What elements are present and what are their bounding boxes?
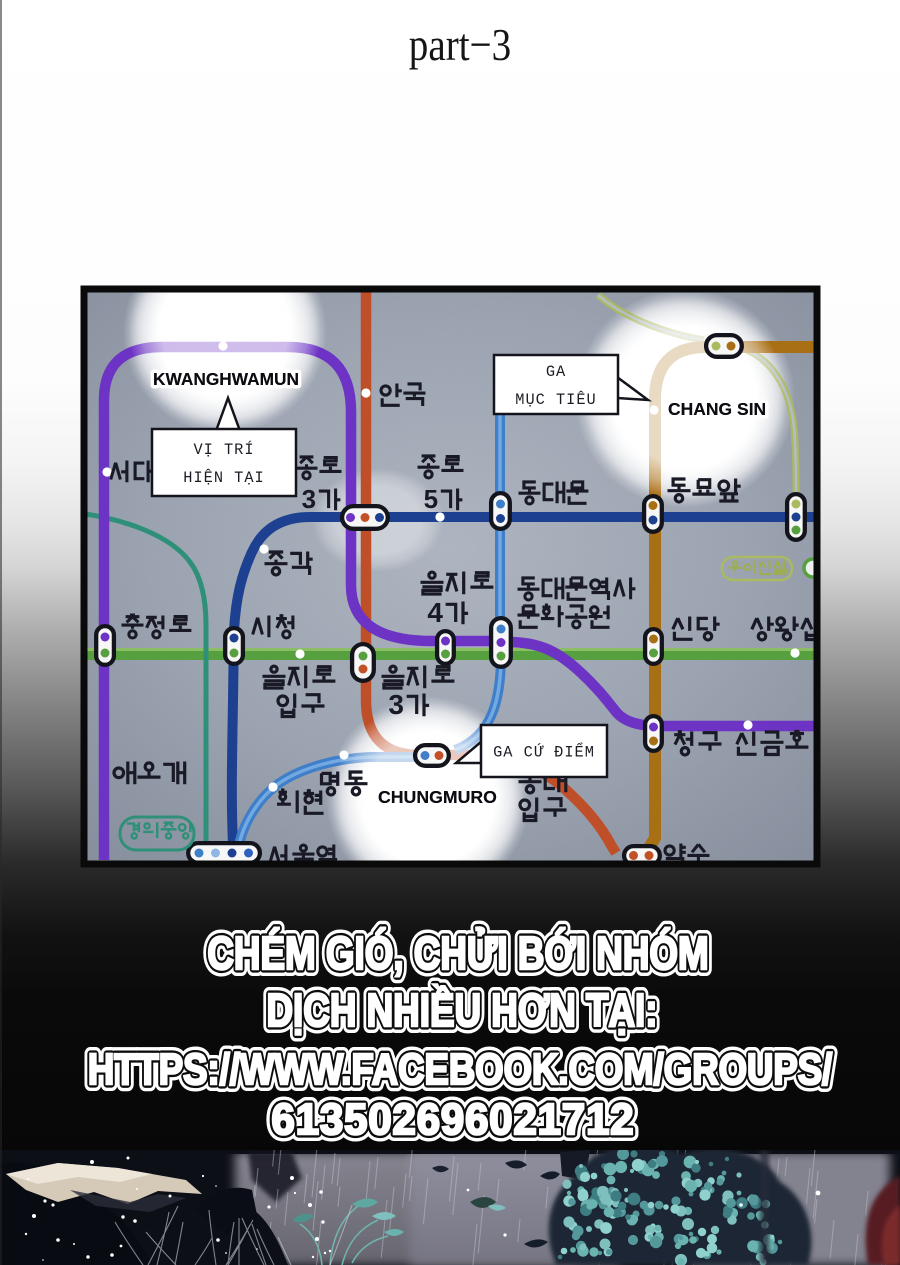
- svg-text:MỤC TIÊU: MỤC TIÊU: [515, 391, 596, 409]
- svg-text:DỊCH NHIỀU HƠN TẠI:: DỊCH NHIỀU HƠN TẠI:: [266, 984, 657, 1036]
- svg-text:5: 5: [424, 484, 438, 514]
- svg-text:3: 3: [388, 689, 404, 720]
- svg-text:KWANGHWAMUN: KWANGHWAMUN: [153, 369, 299, 389]
- svg-text:GA CỨ ĐIỂM: GA CỨ ĐIỂM: [493, 744, 595, 762]
- svg-text:3: 3: [302, 484, 316, 514]
- svg-text:GA: GA: [546, 363, 566, 381]
- svg-text:HTTPS://WWW.FACEBOOK.COM/GROUP: HTTPS://WWW.FACEBOOK.COM/GROUPS/: [88, 1044, 832, 1094]
- svg-text:613502696021712: 613502696021712: [272, 1095, 635, 1144]
- svg-text:HIỆN TẠI: HIỆN TẠI: [183, 469, 264, 487]
- svg-text:CHANG SIN: CHANG SIN: [668, 399, 766, 419]
- svg-text:CHÉM GIÓ, CHỬI BỚI NHÓM: CHÉM GIÓ, CHỬI BỚI NHÓM: [207, 926, 708, 979]
- svg-text:CHUNGMURO: CHUNGMURO: [378, 787, 497, 807]
- svg-text:4: 4: [427, 597, 443, 628]
- svg-text:VỊ TRÍ: VỊ TRÍ: [193, 441, 254, 459]
